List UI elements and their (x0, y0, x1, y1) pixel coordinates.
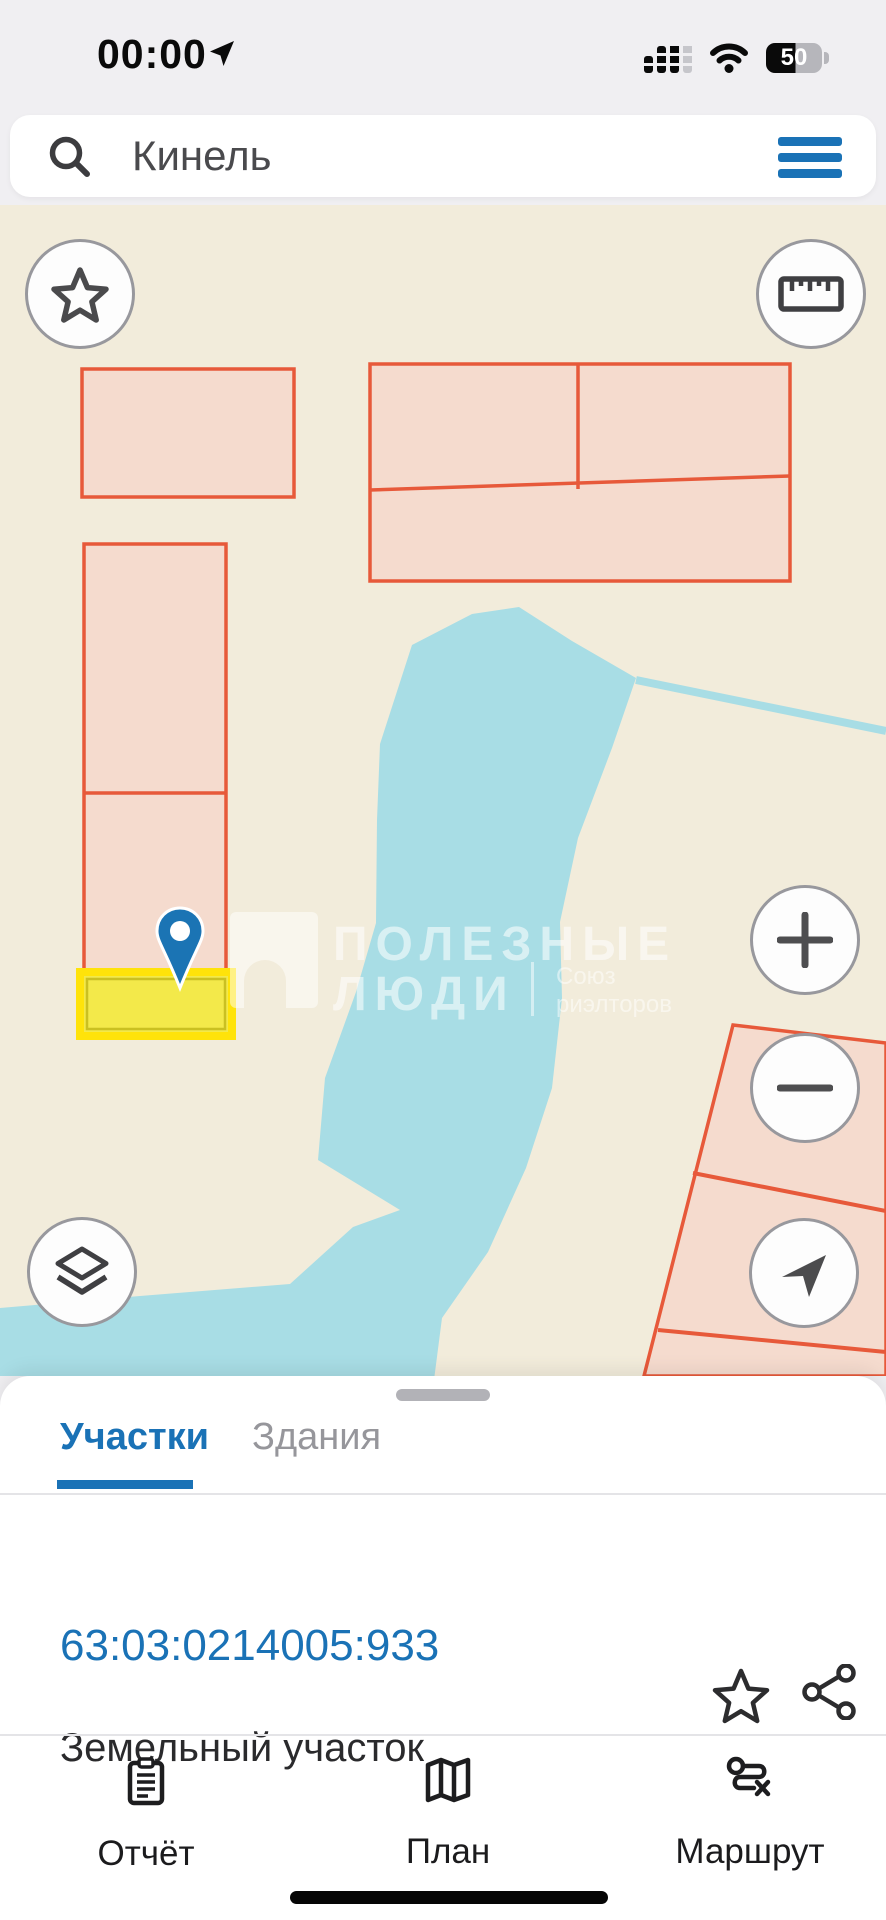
zoom-out-button[interactable] (750, 1033, 860, 1143)
map-canvas[interactable]: ПОЛЕЗНЫЕ ЛЮДИ Союз риэлторов (0, 205, 886, 1376)
search-icon (46, 133, 96, 183)
star-icon (51, 265, 109, 323)
tab-parcels[interactable]: Участки (60, 1416, 209, 1459)
nav-label-report: Отчёт (98, 1834, 195, 1874)
menu-button[interactable] (778, 137, 842, 179)
bottom-sheet: Участки Здания 63:03:0214005:933 Земельн… (0, 1376, 886, 1920)
nav-item-route[interactable]: Маршрут (670, 1756, 830, 1872)
nav-label-route: Маршрут (675, 1832, 824, 1872)
battery-percent: 50 (781, 44, 808, 72)
map-layers (0, 205, 886, 1376)
active-tab-underline (57, 1480, 193, 1489)
minus-icon (777, 1060, 833, 1116)
nav-item-plan[interactable]: План (368, 1756, 528, 1872)
selected-parcel[interactable] (80, 972, 232, 1036)
app-screen: 00:00 50 Кине (0, 0, 886, 1920)
search-bar[interactable]: Кинель (10, 115, 876, 197)
divider (0, 1493, 886, 1495)
divider (0, 1734, 886, 1736)
layers-button[interactable] (27, 1217, 137, 1327)
parcel-id-link[interactable]: 63:03:0214005:933 (60, 1620, 439, 1672)
search-input[interactable]: Кинель (132, 132, 271, 180)
nav-label-plan: План (406, 1832, 490, 1872)
battery-icon: 50 (766, 43, 822, 73)
nav-item-report[interactable]: Отчёт (66, 1756, 226, 1874)
report-clipboard-icon (122, 1756, 170, 1806)
wifi-icon (709, 42, 749, 73)
parcel[interactable] (82, 369, 294, 497)
status-bar: 00:00 50 (0, 0, 886, 112)
ruler-button[interactable] (756, 239, 866, 349)
cellular-signal-icon (644, 43, 692, 73)
parcel[interactable] (84, 544, 226, 975)
route-icon (726, 1756, 774, 1804)
stream (636, 680, 886, 731)
tab-buildings[interactable]: Здания (252, 1416, 381, 1459)
favorite-parcel-button[interactable] (712, 1666, 770, 1724)
favorites-button[interactable] (25, 239, 135, 349)
plus-icon (777, 912, 833, 968)
home-indicator[interactable] (290, 1891, 608, 1904)
navigation-arrow-icon (776, 1245, 832, 1301)
my-location-button[interactable] (749, 1218, 859, 1328)
status-icons: 50 (644, 42, 822, 73)
location-services-icon (206, 38, 236, 68)
battery-cap (824, 52, 829, 64)
ruler-icon (778, 275, 844, 313)
share-button[interactable] (801, 1664, 857, 1720)
sheet-drag-handle[interactable] (396, 1389, 490, 1401)
layers-icon (54, 1246, 110, 1298)
parcel[interactable] (370, 364, 790, 581)
clock: 00:00 (97, 31, 207, 78)
plan-map-icon (423, 1756, 473, 1804)
zoom-in-button[interactable] (750, 885, 860, 995)
